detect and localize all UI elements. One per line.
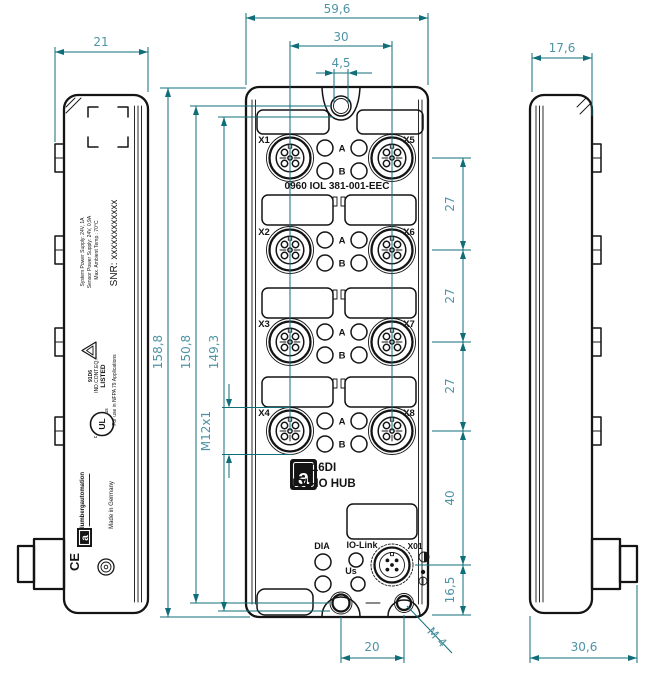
torque-symbol-icon bbox=[419, 552, 429, 562]
svg-text:UL: UL bbox=[97, 418, 107, 429]
led-cluster-row1: A B bbox=[317, 140, 367, 179]
label-corner-brackets bbox=[88, 107, 128, 147]
led-cluster-row4: A B bbox=[317, 413, 367, 452]
iolink-label: IO-Link bbox=[347, 540, 379, 550]
svg-text:59,6: 59,6 bbox=[324, 2, 351, 16]
svg-text:4,5: 4,5 bbox=[331, 56, 350, 70]
brand-logo-icon: a bbox=[77, 528, 92, 547]
part-number: 0960 IOL 381-001-EEC bbox=[285, 181, 390, 192]
nfpa-text: For use in NFPA 79 Applications bbox=[112, 354, 118, 426]
dim-row-chain: 27 27 27 40 16,5 bbox=[415, 158, 471, 615]
dim-row-gap1: 27 bbox=[443, 196, 457, 211]
mounting-ear-left bbox=[322, 597, 360, 616]
label-slot bbox=[357, 110, 423, 134]
svg-text:21: 21 bbox=[93, 35, 108, 49]
bottom-marking-symbol-icon bbox=[419, 570, 427, 585]
dia-led-2 bbox=[315, 576, 331, 592]
led-label-b: B bbox=[339, 259, 346, 270]
led-label-a: A bbox=[339, 236, 346, 247]
led-label-a: A bbox=[339, 328, 346, 339]
mounting-ear-right bbox=[388, 600, 420, 616]
ul-mark-icon: UL c us bbox=[91, 408, 114, 438]
led-cluster-row3: A B bbox=[317, 324, 367, 363]
dia-led-1 bbox=[315, 554, 331, 570]
dim-row-gap3: 27 bbox=[443, 378, 457, 393]
svg-text:M12x1: M12x1 bbox=[199, 411, 213, 451]
dim-row-gap2: 27 bbox=[443, 288, 457, 303]
dim-bottom-thread: M 4 bbox=[407, 606, 452, 653]
port-label-x8: X8 bbox=[403, 408, 415, 419]
product-name-line2: IOL-IO HUB bbox=[292, 478, 355, 490]
m12-port-x01 bbox=[371, 544, 413, 586]
label-slot bbox=[262, 377, 333, 407]
iolink-led bbox=[349, 553, 363, 567]
right-view-port-bumps bbox=[592, 144, 601, 445]
left-view-bottom-connector bbox=[18, 539, 64, 589]
port-label-x5: X5 bbox=[403, 135, 415, 146]
dim-right-view-total-depth: 30,6 bbox=[530, 585, 637, 663]
label-slot bbox=[262, 288, 333, 318]
right-view-bottom-connector bbox=[592, 539, 637, 589]
svg-text:30: 30 bbox=[333, 30, 348, 44]
serial-number: SNR: xxxxxxxxxxxx bbox=[109, 200, 120, 287]
made-in-text: Made in Germany bbox=[109, 481, 115, 529]
front-view: X1 X5 A B 0960 IOL 381-001-EEC bbox=[246, 87, 429, 617]
dim-bottom-hole-pitch: 20 bbox=[341, 615, 404, 663]
us-led bbox=[351, 577, 365, 591]
svg-text:c: c bbox=[93, 435, 99, 438]
dim-total-height: 158,8 bbox=[151, 88, 250, 617]
product-name-line1: 16DI bbox=[312, 462, 336, 474]
us-label: Us bbox=[345, 566, 357, 576]
brand-text: lumbergautomation bbox=[80, 472, 86, 528]
label-slot bbox=[347, 504, 417, 539]
port-label-x6: X6 bbox=[403, 227, 415, 238]
svg-text:20: 20 bbox=[364, 640, 379, 654]
port-label-x7: X7 bbox=[403, 319, 415, 330]
left-view-body bbox=[64, 95, 148, 613]
svg-text:158,8: 158,8 bbox=[151, 335, 165, 369]
top-mounting-tab bbox=[322, 88, 360, 120]
port-label-x4: X4 bbox=[258, 408, 270, 419]
ce-mark: CE bbox=[67, 553, 82, 571]
led-label-b: B bbox=[339, 440, 346, 451]
dia-label: DIA bbox=[314, 541, 330, 551]
label-slot bbox=[262, 195, 333, 225]
spec-line-1: System Power Supply: 24V, 1A bbox=[80, 217, 86, 287]
led-label-a: A bbox=[339, 417, 346, 428]
technical-drawing-page: System Power Supply: 24V, 1A Sensor Powe… bbox=[0, 0, 652, 685]
label-slot bbox=[345, 195, 416, 225]
svg-text:149,3: 149,3 bbox=[207, 335, 221, 369]
warning-triangle-icon bbox=[82, 342, 96, 359]
svg-text:150,8: 150,8 bbox=[179, 335, 193, 369]
port-label-x3: X3 bbox=[258, 319, 270, 330]
dimension-annotations: 59,6 30 4,5 21 17,6 bbox=[55, 2, 637, 663]
right-view-face-seams bbox=[536, 106, 543, 602]
led-cluster-row2: A B bbox=[317, 232, 367, 271]
led-label-b: B bbox=[339, 167, 346, 178]
label-slot bbox=[345, 288, 416, 318]
svg-text:30,6: 30,6 bbox=[571, 640, 598, 654]
dim-x01-to-bottom: 16,5 bbox=[443, 577, 457, 604]
port-label-x1: X1 bbox=[258, 135, 270, 146]
left-view-port-bumps bbox=[55, 144, 64, 445]
left-view-face-seams bbox=[135, 106, 142, 602]
svg-text:17,6: 17,6 bbox=[549, 41, 576, 55]
port-label-x2: X2 bbox=[258, 227, 270, 238]
spec-line-2: Sensor Power Supply: 24V, 0,9A bbox=[87, 215, 93, 288]
ul-listed-text: LISTED bbox=[100, 364, 107, 387]
svg-text:a: a bbox=[80, 535, 91, 541]
led-label-b: B bbox=[339, 351, 346, 362]
label-slot bbox=[345, 377, 416, 407]
certification-mark-icon bbox=[98, 559, 114, 575]
left-side-view: System Power Supply: 24V, 1A Sensor Powe… bbox=[18, 95, 148, 613]
led-label-a: A bbox=[339, 144, 346, 155]
io-link-hub-dimension-drawing: System Power Supply: 24V, 1A Sensor Powe… bbox=[0, 0, 652, 685]
dim-right-view-body-depth: 17,6 bbox=[532, 41, 592, 116]
svg-text:us: us bbox=[104, 408, 110, 414]
spec-line-3: Max. Ambient Temp.: 70°C bbox=[94, 220, 100, 280]
right-side-view bbox=[530, 95, 637, 613]
x01-label: X01 bbox=[407, 541, 422, 551]
dim-x01-gap: 40 bbox=[443, 490, 457, 505]
label-slot bbox=[257, 110, 329, 134]
dim-connector-pitch: 30 bbox=[290, 30, 392, 431]
